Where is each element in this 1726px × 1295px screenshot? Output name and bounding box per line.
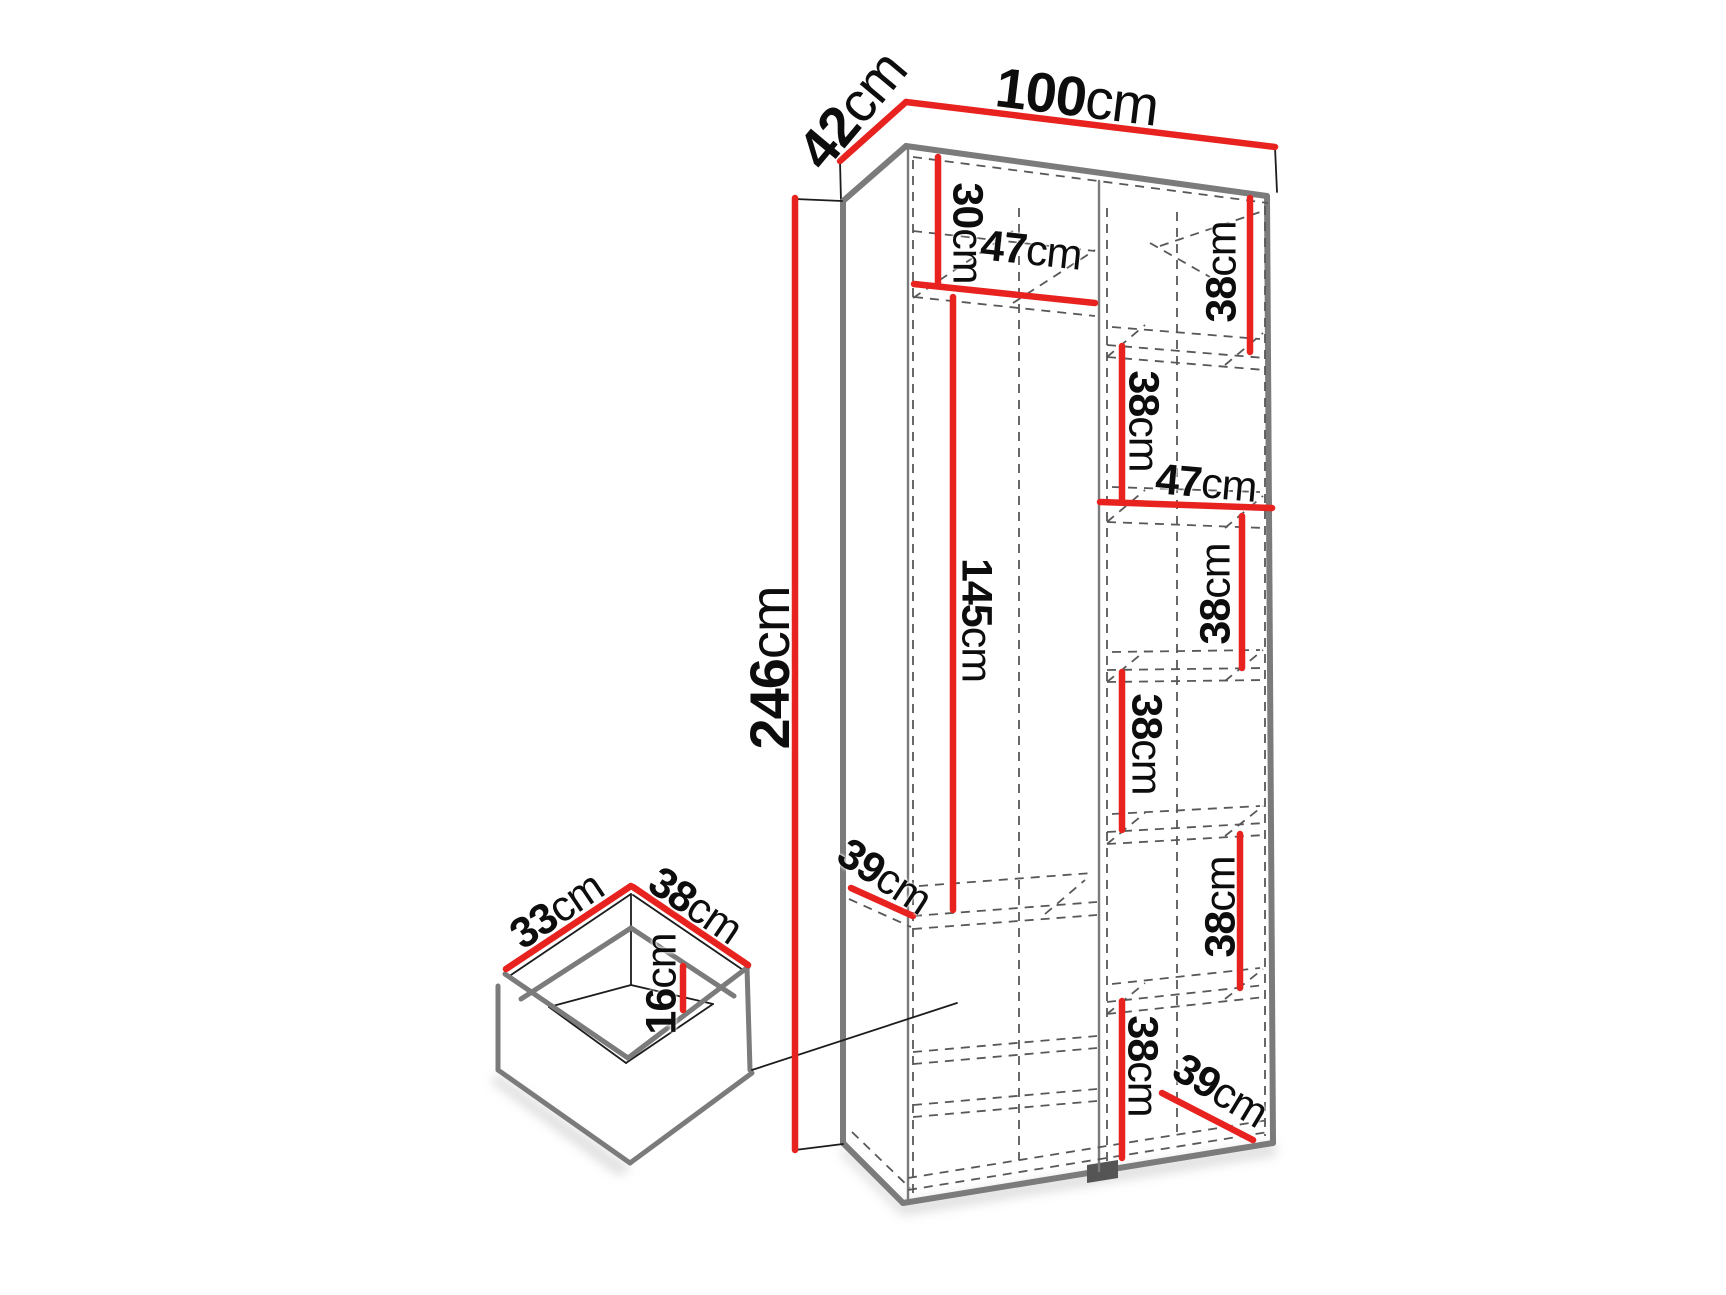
top-slab-left-edge: [840, 161, 841, 201]
front-top-left-edge: [843, 146, 906, 201]
dim-line-drawer-depth-33: [506, 886, 631, 969]
front-top-edge: [906, 146, 1267, 196]
cabinet-outline: [840, 102, 1277, 1203]
dimension-diagram: 42cm100cm30cm47cm38cm38cm47cm38cm38cm38c…: [0, 0, 1726, 1295]
dim-line-drawer-width-38: [633, 887, 748, 965]
dim-line-bottom-depth-39: [1162, 1093, 1253, 1140]
front-right-edge: [1267, 196, 1273, 1143]
drawer-front-bottom-left: [498, 1070, 630, 1163]
red-dimension-lines: [506, 102, 1275, 1158]
dim-line-left-width-47: [914, 284, 1095, 303]
top-slab-right-edge: [1275, 147, 1277, 192]
dim-line-width-100: [906, 102, 1275, 147]
drawer-pointer-line: [752, 1003, 957, 1070]
interior-hidden-lines: [849, 157, 1268, 1196]
drawer-rim-back-left: [508, 894, 631, 977]
drawer-diagram: [498, 894, 752, 1163]
drawer-rim-back-right: [633, 895, 746, 972]
dim-line-left-shelf-depth-39: [851, 888, 913, 916]
bottom-left-corner-edge: [843, 1143, 903, 1203]
drawer-right-edge: [747, 967, 750, 1070]
drawer-front-bottom-right: [630, 1073, 752, 1163]
diagram-canvas: [0, 0, 1726, 1295]
